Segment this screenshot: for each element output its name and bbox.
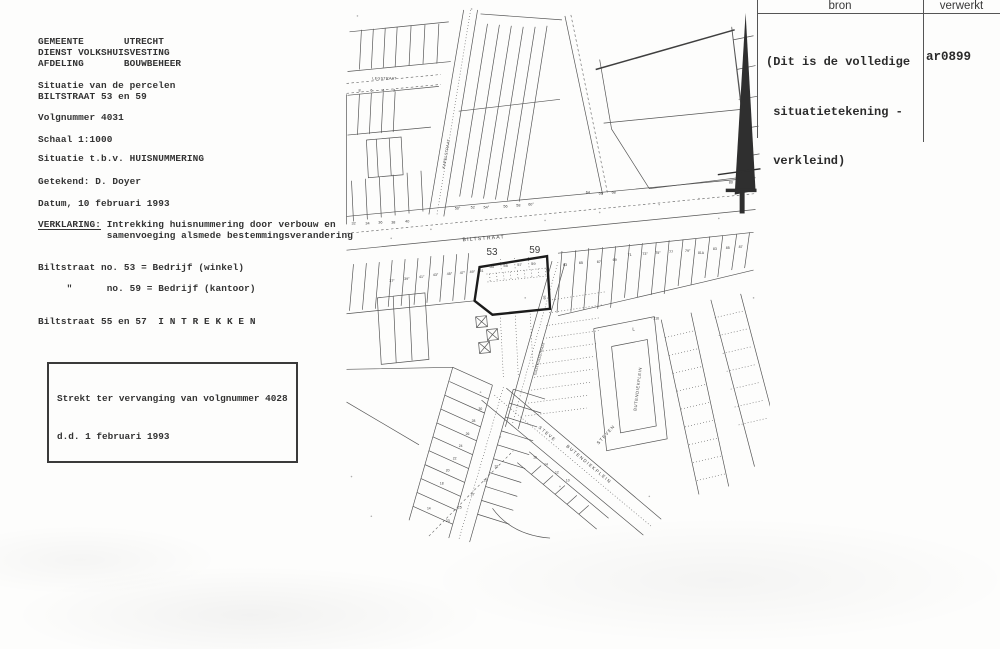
svg-text:36: 36 [378,220,382,224]
column-header-verwerkt: verwerkt [923,0,1000,13]
svg-text:31: 31 [494,465,498,469]
svg-text:4: 4 [382,88,384,92]
svg-text:45°: 45° [447,272,453,276]
svg-text:- 216: - 216 [651,317,659,321]
svg-text:27: 27 [471,492,475,496]
svg-text:50°: 50° [455,206,461,210]
source-note-line-1: (Dit is de volledige [766,54,910,71]
replacement-note-line-1: Strekt ter vervanging van volgnummer 402… [57,393,288,406]
svg-text:54°: 54° [484,206,490,210]
svg-text:10: 10 [566,479,570,483]
svg-text:55: 55 [503,263,508,268]
map-dotted-boundaries [437,10,769,540]
svg-text:40: 40 [405,219,409,223]
svg-text:23: 23 [446,519,450,523]
svg-text:68: 68 [612,191,616,195]
svg-text:87: 87 [739,245,743,249]
svg-text:47°: 47° [460,271,466,275]
svg-text:LEGSTRAAT: LEGSTRAAT [372,76,397,80]
svg-text:29: 29 [484,479,488,483]
svg-text:34: 34 [365,221,369,225]
svg-text:63: 63 [563,263,567,267]
schaal-line: Schaal 1:1000 [38,134,112,145]
svg-text:L: L [632,327,635,332]
svg-text:85: 85 [726,246,730,250]
svg-text:BUTENDIEKPLEIN: BUTENDIEKPLEIN [632,367,642,411]
svg-text:58: 58 [516,204,520,208]
svg-text:20: 20 [446,469,450,473]
svg-text:43°: 43° [433,273,439,277]
svg-text:53: 53 [489,264,494,269]
table-header-rule [757,13,1000,14]
svg-text:75°: 75° [655,251,661,255]
svg-text:52: 52 [471,206,475,210]
svg-text:77: 77 [669,250,673,254]
svg-text:56: 56 [503,205,507,209]
svg-text:65: 65 [579,261,583,265]
situation-map: LEGSTRAAT8642KAPELSTRAAT50°5254°565860°6… [340,4,770,550]
svg-text:2: 2 [393,88,395,92]
division-line: AFDELING BOUWBEHEER [38,58,181,69]
map-labels: LEGSTRAAT8642KAPELSTRAAT50°5254°565860°6… [351,76,742,523]
map-block-edges [596,30,735,70]
column-header-bron: bron [757,0,923,13]
svg-text:73°: 73° [642,252,648,256]
agency-name-line: GEMEENTE UTRECHT [38,36,164,47]
svg-text:BUTENDIEKPLEIN: BUTENDIEKPLEIN [565,444,613,485]
svg-text:67: 67 [597,260,601,264]
table-column-divider [923,0,924,142]
getekend-line: Getekend: D. Doyer [38,176,141,187]
svg-text:37°: 37° [389,279,395,283]
svg-text:28: 28 [472,419,476,423]
svg-text:59: 59 [542,295,547,300]
replacement-note-line-2: d.d. 1 februari 1993 [57,431,288,444]
svg-text:53: 53 [487,247,499,258]
svg-text:GASTHUISSTRAAT: GASTHUISSTRAAT [533,341,546,375]
datum-line: Datum, 10 februari 1993 [38,198,170,209]
scanned-document-page: { "colors": {"paper":"#fdfdfc","ink":"#3… [0,0,1000,649]
verklaring-line-1: VERKLARING: Intrekking huisnummering doo… [38,219,336,230]
verklaring-text: Intrekking huisnummering door verbouw en [101,219,336,230]
subject-line-1: Situatie van de percelen [38,80,175,91]
svg-text:12: 12 [555,471,559,475]
highlighted-parcel-53-59 [475,256,550,315]
svg-text:80: 80 [729,181,733,185]
svg-text:59: 59 [531,261,536,266]
svg-text:25: 25 [458,505,462,509]
svg-text:59: 59 [529,245,541,256]
svg-text:38: 38 [391,220,395,224]
svg-text:30: 30 [479,407,483,411]
svg-text:14: 14 [544,463,548,467]
svg-text:66: 66 [599,192,603,196]
svg-text:8: 8 [358,88,360,92]
source-note: (Dit is de volledige situatietekening - … [766,21,910,186]
svg-text:41°: 41° [419,275,425,279]
svg-text:60°: 60° [528,203,534,207]
usage-line-59: " no. 59 = Bedrijf (kantoor) [38,283,256,294]
svg-text:79°: 79° [685,249,691,253]
svg-text:81A: 81A [698,251,705,255]
svg-text:18: 18 [440,481,444,485]
svg-text:57: 57 [517,262,521,267]
svg-text:71: 71 [627,253,631,257]
verklaring-line-2: samenvoeging alsmede bestemmingsverander… [38,230,353,241]
svg-text:26: 26 [466,432,470,436]
svg-text:BILTSTRAAT: BILTSTRAAT [462,234,505,243]
svg-text:24: 24 [459,444,463,448]
replacement-note-box: Strekt ter vervanging van volgnummer 402… [47,362,298,463]
svg-text:14: 14 [427,506,431,510]
svg-text:KAPELSTRAAT: KAPELSTRAAT [442,138,451,169]
svg-text:83: 83 [713,247,717,251]
subject-line-2: BILTSTRAAT 53 en 59 [38,91,147,102]
svg-text:22: 22 [453,457,457,461]
source-note-line-3: verkleind) [766,153,910,170]
spire-symbol [718,13,761,214]
svg-text:STEVE: STEVE [537,425,557,443]
svg-text:51: 51 [480,269,484,273]
svg-text:16: 16 [533,456,537,460]
svg-text:64: 64 [586,191,590,195]
situatie-line: Situatie t.b.v. HUISNUMMERING [38,153,204,164]
map-parcel-linework [347,10,770,542]
volgnummer-line: Volgnummer 4031 [38,112,124,123]
department-line: DIENST VOLKSHUISVESTING [38,47,170,58]
svg-text:69: 69 [613,258,617,262]
intrekken-line: Biltstraat 55 en 57 I N T R E K K E N [38,316,256,327]
source-note-line-2: situatietekening - [766,104,910,121]
usage-line-53: Biltstraat no. 53 = Bedrijf (winkel) [38,262,244,273]
verklaring-label: VERKLARING: [38,219,101,230]
archive-code: ar0899 [926,50,971,64]
svg-text:49°: 49° [470,270,476,274]
svg-text:32: 32 [351,221,355,225]
svg-text:6: 6 [370,88,372,92]
svg-text:39°: 39° [404,277,410,281]
